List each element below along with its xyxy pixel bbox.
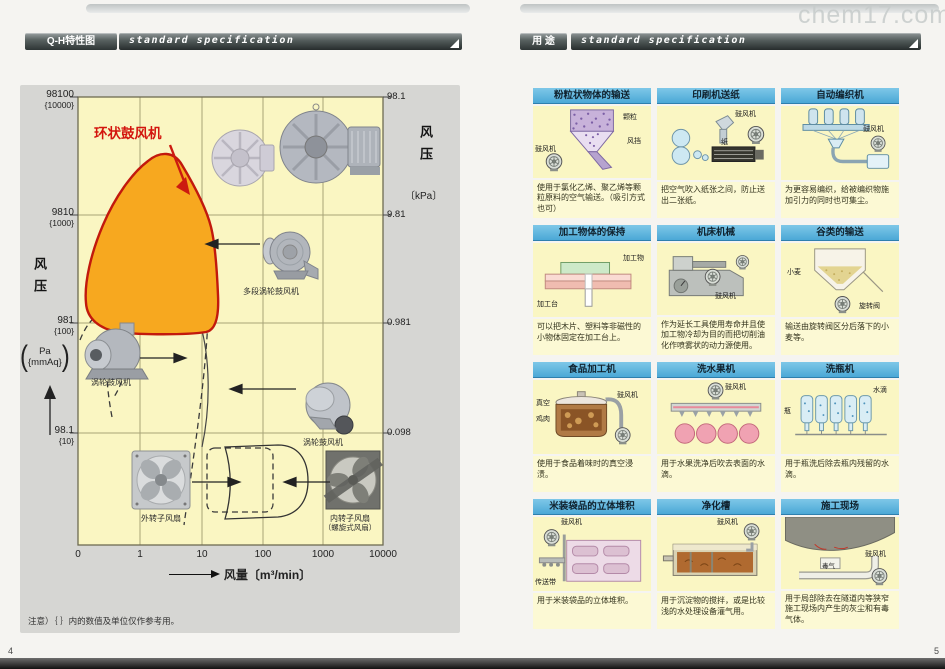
machine-tool-graphic <box>660 243 772 315</box>
app-illustration: 鼓风机 <box>657 517 775 591</box>
annotation-label: 鼓风机 <box>715 293 736 301</box>
x-tick: 1000 <box>301 549 345 560</box>
outer-rotor-fan-image <box>132 451 190 509</box>
app-cell-printing-paper: 印刷机送纸 鼓风机 纸 把空气吹入纸张之间，防止送出二张纸。 <box>657 88 775 218</box>
annotation-label: 鼓风机 <box>735 111 756 119</box>
app-illustration: 真空 鸡肉 鼓风机 <box>533 380 651 454</box>
page-number-right: 5 <box>934 646 939 656</box>
left-header-bar: standard specification <box>119 33 462 50</box>
y-axis-title-right: 风压 <box>416 125 435 169</box>
app-cell-grain-transport: 谷类的输送 小麦 旋转阀 输送由旋转阀区分后落下的小麦等。 <box>781 225 899 355</box>
app-caption: 用于局部除去在隧道内等狭窄施工现场内产生的灰尘和有毒气体。 <box>781 591 899 629</box>
app-caption: 输送由旋转阀区分后落下的小麦等。 <box>781 319 899 355</box>
annotation-label: 鼓风机 <box>725 384 746 392</box>
app-title: 机床机械 <box>657 225 775 241</box>
annotation-label: 鸡肉 <box>536 416 550 424</box>
y-axis-title-left: 风压 <box>30 257 49 301</box>
blower-icon <box>708 383 723 400</box>
inner-rotor-fan-image <box>324 451 383 509</box>
x-tick: 0 <box>56 549 100 560</box>
app-illustration: 加工物 加工台 <box>533 243 651 317</box>
y-axis-unit-left: ( Pa{mmAq} ) <box>20 343 70 371</box>
watermark: chem17.com <box>798 1 945 30</box>
annotation-label: 鼓风机 <box>863 126 884 134</box>
app-caption: 用于水果洗净后吹去表面的水滴。 <box>657 456 775 492</box>
app-cell-knitting-machine: 自动编织机 鼓风机 为更容易编织，给被编织物施加引力的同时也可集尘。 <box>781 88 899 218</box>
y-tick-right: 0.098 <box>387 427 411 438</box>
app-cell-workpiece-holding: 加工物体的保持 加工物 加工台 可以把木片、塑料等非磁性的小物体固定在加工台上。 <box>533 225 651 355</box>
page-number-left: 4 <box>8 646 13 656</box>
annotation-label: 毒气 <box>822 563 835 571</box>
app-caption: 用于瓶洗后除去瓶内残留的水滴。 <box>781 456 899 492</box>
fruit-washer-graphic <box>660 380 772 454</box>
app-illustration: 鼓风机 传送带 <box>533 517 651 591</box>
annotation-label: 小麦 <box>787 269 801 277</box>
annotation-label: 传送带 <box>535 579 556 587</box>
app-illustration: 鼓风机 <box>657 243 775 315</box>
app-title: 食品加工机 <box>533 362 651 378</box>
y-tick-right: 98.1 <box>387 91 406 102</box>
app-cell-machine-tool: 机床机械 鼓风机 作为延长工具使用寿命并且使加工物冷却为目的而把切削油化作喷雾状… <box>657 225 775 355</box>
app-title: 粉粒状物体的输送 <box>533 88 651 104</box>
machine-label: 涡轮鼓风机 <box>292 437 354 448</box>
annotation-label: 鼓风机 <box>617 392 638 400</box>
blower-icon <box>544 530 559 547</box>
y-tick-left: 981{100} <box>22 315 74 337</box>
y-tick-left: 98100{10000} <box>22 89 74 111</box>
app-illustration: 鼓风机 纸 <box>657 106 775 180</box>
y-axis-unit-right: 〔kPa〕 <box>405 187 442 202</box>
app-caption: 使用于食品着味时的真空浸渍。 <box>533 456 651 492</box>
annotation-label: 纸 <box>721 139 728 147</box>
annotation-label: 瓶 <box>784 408 791 416</box>
annotation-label: 鼓风机 <box>865 551 886 559</box>
app-title: 自动编织机 <box>781 88 899 104</box>
y-tick-right: 9.81 <box>387 209 406 220</box>
app-illustration: 鼓风机 <box>657 380 775 454</box>
machine-label: 涡轮鼓风机 <box>80 377 142 388</box>
app-caption: 可以把木片、塑料等非磁性的小物体固定在加工台上。 <box>533 319 651 355</box>
annotation-label: 鼓风机 <box>717 519 738 527</box>
right-header-title: standard specification <box>581 35 746 46</box>
app-caption: 使用于氯化乙烯、聚乙烯等颗粒原料的空气输送。（吸引方式也可） <box>533 180 651 218</box>
x-tick: 10 <box>180 549 224 560</box>
app-cell-construction-site: 施工现场 鼓风机 毒气 用于局部除去在隧道内等狭窄施工现场内产生的灰尘和有毒气体… <box>781 499 899 629</box>
x-axis-title: 风量〔m³/min〕 <box>130 566 350 583</box>
annotation-label: 旋转阀 <box>859 303 880 311</box>
footer-bar <box>0 658 945 669</box>
knitting-machine-graphic <box>784 106 896 180</box>
annotation-label: 风挡 <box>627 138 641 146</box>
y-tick-right: 0.981 <box>387 317 411 328</box>
machine-label: 多段涡轮鼓风机 <box>236 286 306 297</box>
app-title: 洗瓶机 <box>781 362 899 378</box>
blower-icon <box>871 136 885 152</box>
scan-edge-left <box>86 4 470 13</box>
annotation-label: 真空 <box>536 400 550 408</box>
blower-icon <box>748 126 764 144</box>
chart-note: 注意）｛ ｝内的数值及单位仅作参考用。 <box>28 615 179 627</box>
right-header-bar: standard specification <box>571 33 921 50</box>
annotation-label: 鼓风机 <box>561 519 582 527</box>
app-cell-food-processor: 食品加工机 真空 鸡肉 鼓风机 使用于食品着味时的真空浸渍。 <box>533 362 651 492</box>
app-illustration: 鼓风机 毒气 <box>781 517 899 589</box>
y-tick-left: 9810{1000} <box>22 207 74 229</box>
app-cell-fruit-washer: 洗水果机 鼓风机 用于水果洗净后吹去表面的水滴。 <box>657 362 775 492</box>
app-illustration: 鼓风机 <box>781 106 899 180</box>
corner-triangle-icon <box>450 39 459 48</box>
app-title: 印刷机送纸 <box>657 88 775 104</box>
blower-icon <box>835 297 850 314</box>
app-illustration: 小麦 旋转阀 <box>781 243 899 317</box>
app-title: 谷类的输送 <box>781 225 899 241</box>
annotation-label: 加工物 <box>623 255 644 263</box>
ring-blower-label: 环状鼓风机 <box>94 122 162 142</box>
app-caption: 用于沉淀物的搅拌，或是比较浅的水处理设备灌气用。 <box>657 593 775 629</box>
annotation-label: 颗粒 <box>623 114 637 122</box>
qh-chart-panel: 98100{10000} 9810{1000} 981{100} 98.1{10… <box>20 85 460 633</box>
y-tick-left: 98.1{10} <box>22 425 74 447</box>
purification-tank-graphic <box>660 517 772 591</box>
machine-label: 外转子风扇 <box>128 513 194 524</box>
app-title: 施工现场 <box>781 499 899 515</box>
x-tick: 10000 <box>361 549 405 560</box>
app-caption: 作为延长工具使用寿命并且使加工物冷却为目的而把切削油化作喷雾状的动力源使用。 <box>657 317 775 355</box>
left-header-title: standard specification <box>129 35 294 46</box>
blower-icon <box>872 569 887 586</box>
corner-triangle-icon <box>909 39 918 48</box>
app-title: 洗水果机 <box>657 362 775 378</box>
app-title: 米装袋品的立体堆积 <box>533 499 651 515</box>
blower-icon <box>744 524 759 541</box>
app-caption: 为更容易编织，给被编织物施加引力的同时也可集尘。 <box>781 182 899 218</box>
annotation-label: 水滴 <box>873 387 887 395</box>
right-header-tab: 用 途 <box>520 33 567 50</box>
app-cell-bottle-washer: 洗瓶机 瓶 水滴 用于瓶洗后除去瓶内残留的水滴。 <box>781 362 899 492</box>
app-caption: 用于米装袋品的立体堆积。 <box>533 593 651 629</box>
applications-grid: 粉粒状物体的输送 鼓风机 颗粒 风挡 使用于氯化乙烯、聚乙烯等颗粒原料的空气输送… <box>533 88 899 629</box>
left-header-tab: Q-H特性图 <box>25 33 117 50</box>
annotation-label: 加工台 <box>537 301 558 309</box>
app-cell-powder-transport: 粉粒状物体的输送 鼓风机 颗粒 风挡 使用于氯化乙烯、聚乙烯等颗粒原料的空气输送… <box>533 88 651 218</box>
annotation-label: 鼓风机 <box>535 146 556 154</box>
blower-icon <box>736 255 748 269</box>
machine-label: （螺旋式风扇） <box>310 522 390 533</box>
blower-icon <box>615 428 630 445</box>
app-title: 净化槽 <box>657 499 775 515</box>
app-illustration: 瓶 水滴 <box>781 380 899 454</box>
app-cell-purification-tank: 净化槽 鼓风机 用于沉淀物的搅拌，或是比较浅的水处理设备灌气用。 <box>657 499 775 629</box>
app-caption: 把空气吹入纸张之间，防止送出二张纸。 <box>657 182 775 218</box>
catalog-spread: chem17.com 4 5 Q-H特性图 standard specifica… <box>0 0 945 669</box>
app-illustration: 鼓风机 颗粒 风挡 <box>533 106 651 178</box>
app-cell-rice-bag-stacking: 米装袋品的立体堆积 鼓风机 传送带 用于米装袋品的立体堆积。 <box>533 499 651 629</box>
x-tick: 100 <box>241 549 285 560</box>
x-axis-arrow-icon <box>169 574 217 575</box>
app-title: 加工物体的保持 <box>533 225 651 241</box>
blower-icon <box>546 154 562 172</box>
x-tick: 1 <box>118 549 162 560</box>
